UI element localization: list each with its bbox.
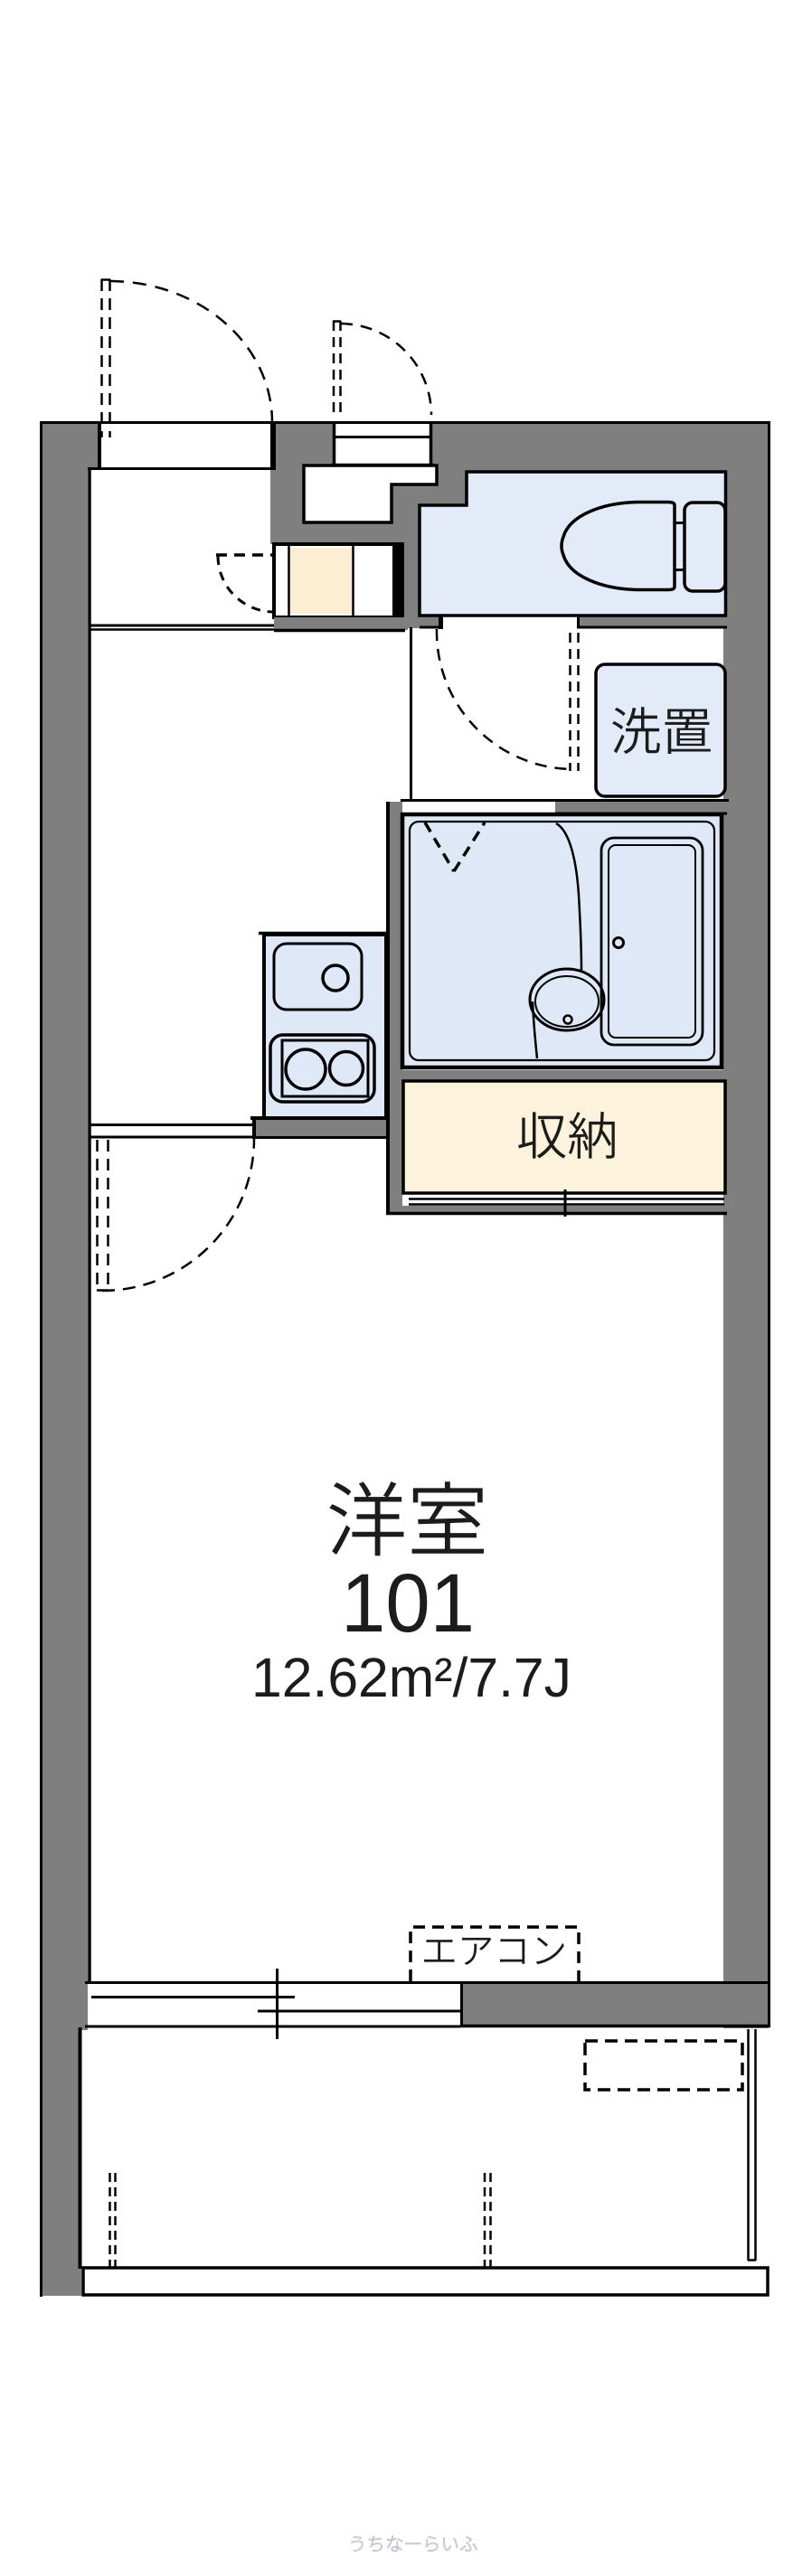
svg-text:101: 101 <box>341 1557 475 1650</box>
svg-text:12.62m²/7.7J: 12.62m²/7.7J <box>251 1647 571 1708</box>
